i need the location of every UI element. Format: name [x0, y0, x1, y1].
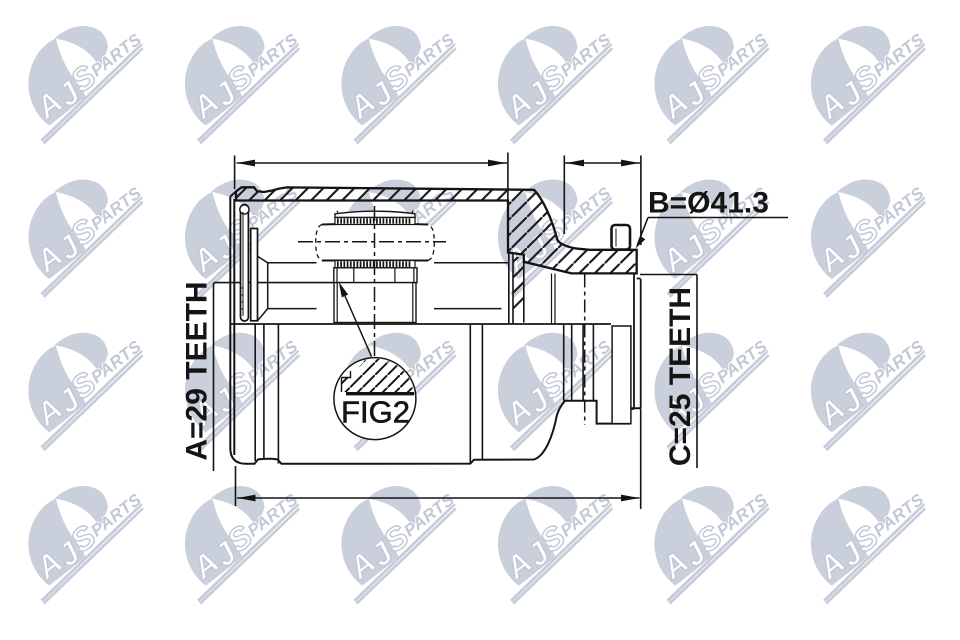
svg-text:FIG2: FIG2 — [341, 395, 410, 430]
svg-text:B=Ø41.3: B=Ø41.3 — [648, 187, 769, 220]
svg-text:A=29 TEETH: A=29 TEETH — [181, 281, 214, 460]
svg-text:C=25 TEETH: C=25 TEETH — [664, 287, 697, 466]
